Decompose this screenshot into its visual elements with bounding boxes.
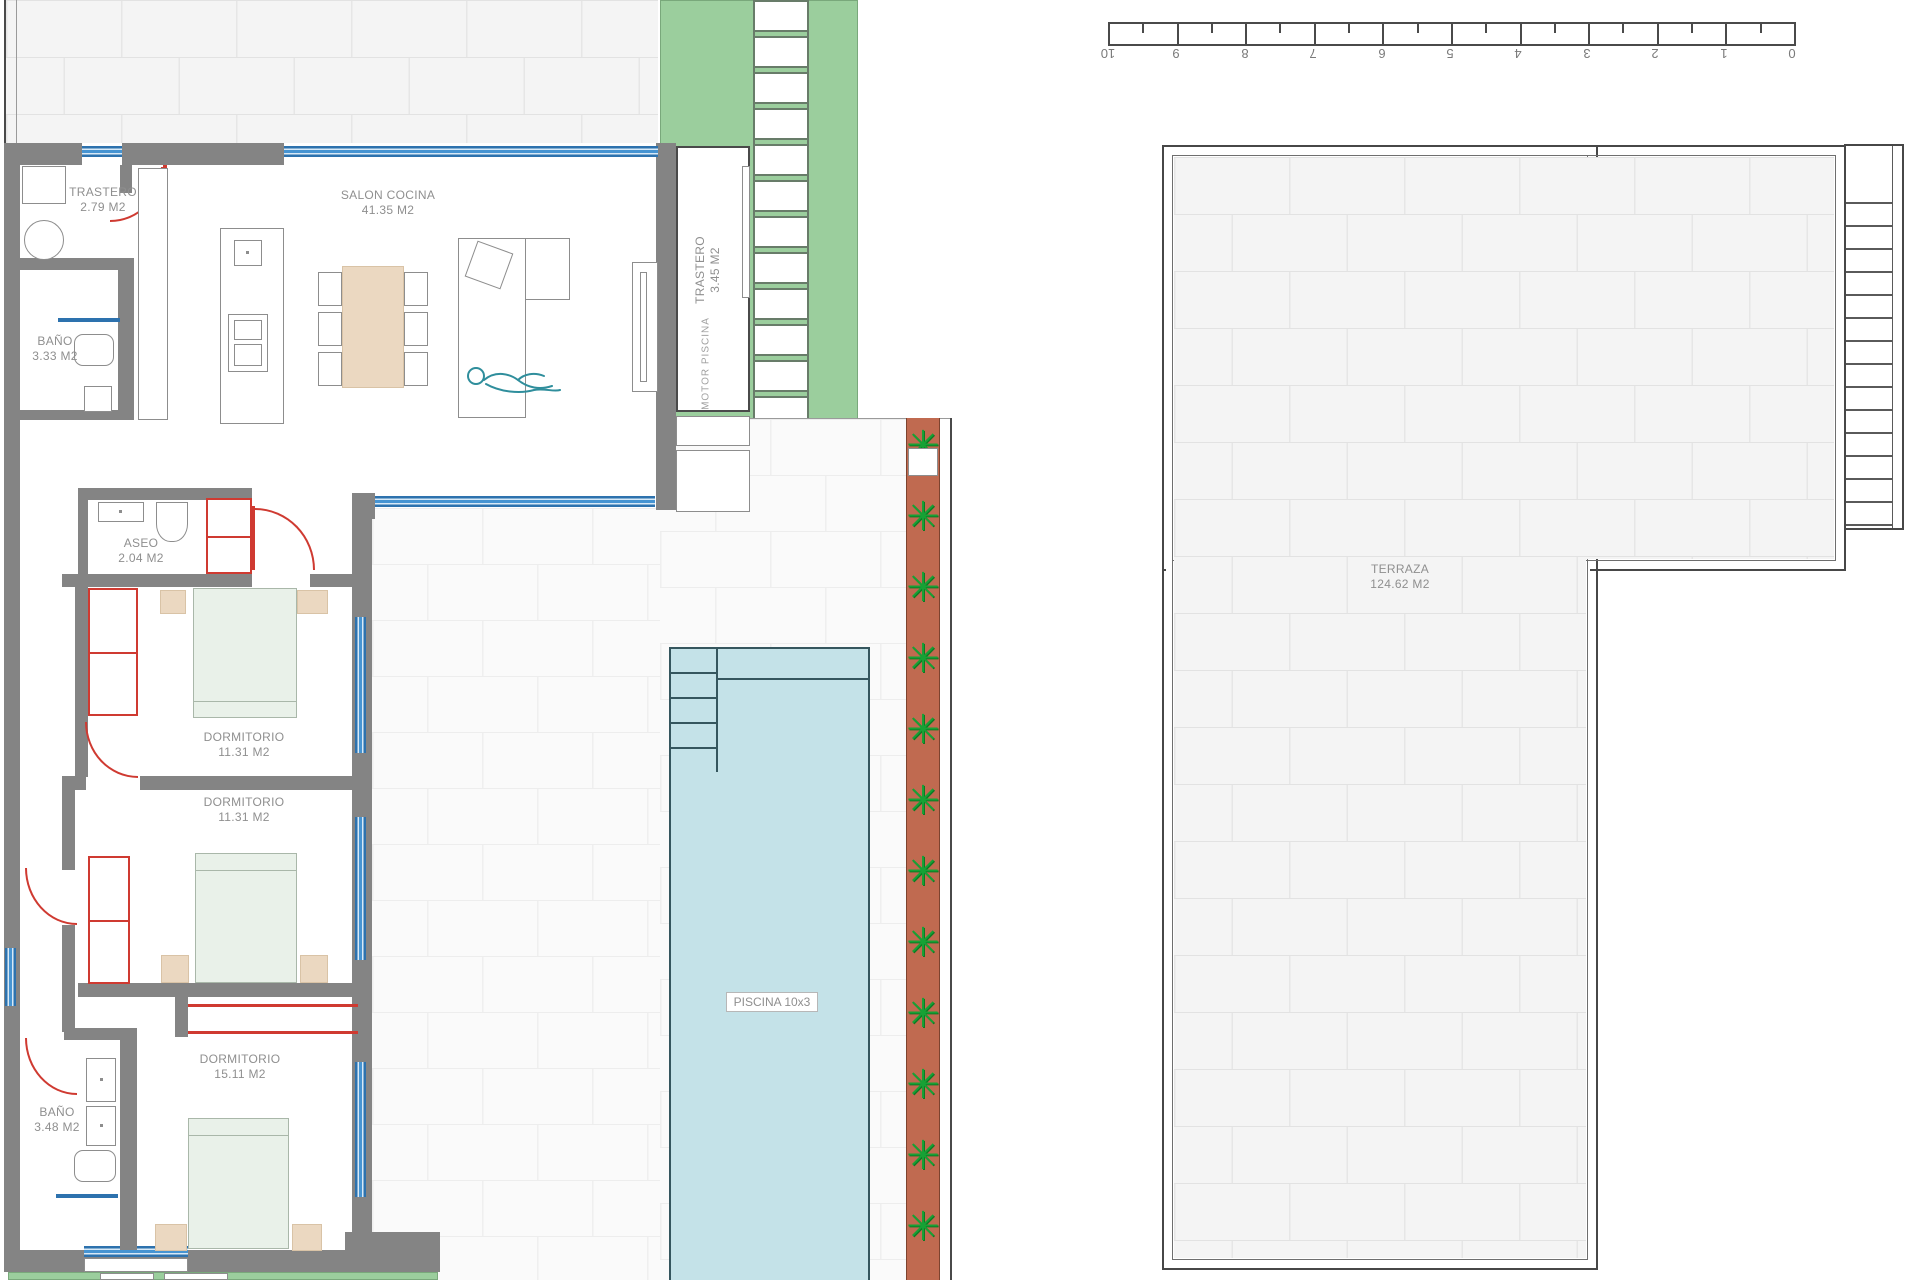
- dining-chair: [404, 352, 428, 386]
- ruler-segment: [1384, 24, 1453, 44]
- plant-icon: ✳: [906, 710, 940, 750]
- terraza-paving-lower: [1174, 157, 1586, 1258]
- wardrobe-divider: [90, 652, 136, 654]
- ruler-segment: [1727, 24, 1794, 44]
- kitchen-cooktop-inner-1: [234, 320, 262, 340]
- nightstand: [300, 955, 328, 983]
- slider-track-dorm2: [188, 1004, 358, 1007]
- bed-dorm3: [188, 1118, 289, 1249]
- ruler-minor-tick: [1417, 24, 1419, 33]
- wall-trastero1-bottom: [20, 258, 134, 270]
- ruler-segment: [1316, 24, 1385, 44]
- annex-box-small: [676, 416, 750, 446]
- window-bedroom-3: [355, 1062, 366, 1197]
- bed-fold: [194, 701, 296, 702]
- wall-left: [4, 143, 20, 1250]
- ruler-number: 6: [1378, 46, 1385, 61]
- door-arc-dorm2: [25, 868, 77, 925]
- room-label-salon: SALON COCINA 41.35 M2: [308, 188, 468, 218]
- wall-bano1-bottom: [20, 410, 134, 420]
- dining-chair: [404, 272, 428, 306]
- ruler-segment: [1179, 24, 1248, 44]
- room-label-bano2: BAÑO 3.48 M2: [0, 1105, 137, 1135]
- bed-dorm1: [193, 588, 297, 718]
- wall-dorm1-top-b: [310, 574, 360, 587]
- window-bedroom-2: [355, 817, 366, 960]
- ruler-minor-tick: [1348, 24, 1350, 33]
- plant-icon: ✳: [906, 639, 940, 679]
- ruler-number: 0: [1788, 46, 1795, 61]
- wall-dorm2-bottom: [78, 983, 360, 997]
- bano1-shower-screen: [58, 318, 120, 322]
- scale-ruler-numbers: 109876543210: [1108, 46, 1792, 62]
- aseo-sink-tap: [119, 510, 122, 513]
- pool-shelf-line: [718, 678, 868, 680]
- nightstand: [292, 1224, 322, 1251]
- door-arc-aseo: [255, 508, 315, 570]
- wardrobe-dorm2: [88, 856, 130, 984]
- nightstand: [160, 590, 186, 614]
- plant-strip: ✳✳✳✳✳✳✳✳✳✳✳✳: [906, 418, 940, 1280]
- wall-hall-dorm1: [75, 587, 88, 777]
- plant-icon: ✳: [906, 1136, 940, 1176]
- bano2-toilet: [74, 1150, 116, 1182]
- plant-icon: ✳: [906, 497, 940, 537]
- window-salon-top: [284, 146, 658, 157]
- dining-chair: [318, 352, 342, 386]
- ruler-number: 8: [1241, 46, 1248, 61]
- wall-right-upper: [656, 143, 676, 510]
- wall-hall-dorm2-b: [62, 925, 75, 1032]
- plant-icon: ✳: [906, 1207, 940, 1247]
- floor-plan-canvas: ✳✳✳✳✳✳✳✳✳✳✳✳ PISCINA 10x3: [0, 0, 1920, 1280]
- dining-table: [342, 266, 404, 388]
- wall-dorm1-top-a: [62, 574, 252, 587]
- window-left-wall: [5, 948, 16, 1006]
- trastero1-boiler: [24, 220, 64, 260]
- driveway-paving: [6, 0, 658, 143]
- door-arc-dorm1: [85, 722, 138, 778]
- ruler-number: 10: [1101, 46, 1115, 61]
- wall-hall-dorm2-a: [62, 790, 75, 870]
- bano1-sink: [84, 386, 112, 412]
- ruler-segment: [1590, 24, 1659, 44]
- plant-icon: ✳: [906, 852, 940, 892]
- window-top-small: [82, 146, 122, 157]
- ruler-segment: [1110, 24, 1179, 44]
- window-salon-bottom: [375, 496, 655, 507]
- ruler-number: 3: [1583, 46, 1590, 61]
- wall-bottom-step: [345, 1232, 440, 1272]
- ruler-minor-tick: [1760, 24, 1762, 33]
- ruler-segment: [1659, 24, 1728, 44]
- wall-bano2-right: [120, 1028, 137, 1250]
- ruler-segment: [1453, 24, 1522, 44]
- plant-icon: ✳: [906, 994, 940, 1034]
- person-icon: [460, 350, 564, 412]
- kitchen-sink-tap: [246, 251, 249, 254]
- ruler-minor-tick: [1622, 24, 1624, 33]
- kitchen-cooktop-inner-2: [234, 344, 262, 366]
- bed-fold: [196, 870, 296, 871]
- ruler-minor-tick: [1142, 24, 1144, 33]
- bed-fold: [189, 1135, 288, 1136]
- ruler-minor-tick: [1691, 24, 1693, 33]
- ruler-minor-tick: [1554, 24, 1556, 33]
- wall-dorm2-stub: [175, 995, 188, 1037]
- wall-dorm1-bottom-a: [62, 776, 86, 790]
- stair-treads: [1846, 204, 1892, 526]
- nightstand: [161, 955, 189, 983]
- plant-icon: ✳: [906, 923, 940, 963]
- nightstand: [297, 590, 328, 614]
- window-seat-bottom-left: [84, 1258, 188, 1272]
- pool-terrace-paving-left: [372, 508, 660, 1280]
- wardrobe-divider: [90, 920, 128, 922]
- pool-label: PISCINA 10x3: [726, 992, 818, 1012]
- terrace-stairs: [1844, 144, 1904, 530]
- window-bedroom-1: [355, 617, 366, 753]
- annex-box-large: [676, 450, 750, 512]
- ruler-number: 9: [1173, 46, 1180, 61]
- bano2-shower-screen: [56, 1194, 118, 1198]
- ruler-segment: [1522, 24, 1591, 44]
- plant-icon: ✳: [906, 781, 940, 821]
- bottom-garden-box: [164, 1273, 228, 1280]
- wall-bottom: [4, 1250, 372, 1272]
- bottom-garden-box: [100, 1273, 154, 1280]
- slider-track-dorm3: [188, 1031, 358, 1034]
- ruler-minor-tick: [1211, 24, 1213, 33]
- ruler-number: 2: [1652, 46, 1659, 61]
- wall-dorm1-bottom-b: [140, 776, 360, 790]
- bed-dorm2: [195, 853, 297, 983]
- tv-screen: [640, 272, 647, 382]
- plant-icon: ✳: [906, 1065, 940, 1105]
- plot-boundary-left-inner: [16, 0, 17, 143]
- room-label-terraza: TERRAZA 124.62 M2: [1320, 562, 1480, 592]
- ruler-minor-tick: [1279, 24, 1281, 33]
- wardrobe-dorm1: [88, 588, 138, 716]
- room-label-dorm1: DORMITORIO 11.31 M2: [164, 730, 324, 760]
- planter-access-box: [908, 448, 938, 476]
- room-label-dorm3: DORMITORIO 15.11 M2: [160, 1052, 320, 1082]
- plot-boundary-right: [950, 418, 952, 1280]
- annex-door-line: [742, 166, 750, 298]
- ruler-number: 5: [1446, 46, 1453, 61]
- dining-chair: [318, 312, 342, 346]
- dining-chair: [404, 312, 428, 346]
- scale-ruler-bar: [1108, 22, 1796, 46]
- ruler-minor-tick: [1485, 24, 1487, 33]
- ruler-number: 7: [1310, 46, 1317, 61]
- room-label-trastero1: TRASTERO 2.79 M2: [23, 185, 183, 215]
- nightstand: [155, 1224, 187, 1251]
- room-label-dorm2: DORMITORIO 11.31 M2: [164, 795, 324, 825]
- door-arc-bano2: [25, 1038, 77, 1095]
- pool-steps: [671, 649, 718, 772]
- wall-top-b: [122, 143, 284, 165]
- room-label-bano1: BAÑO 3.33 M2: [0, 334, 135, 364]
- ruler-number: 4: [1515, 46, 1522, 61]
- stair-side-line: [1892, 146, 1893, 528]
- ruler-number: 1: [1720, 46, 1727, 61]
- bano2-cabinet-dot: [100, 1078, 103, 1081]
- plant-icon: ✳: [906, 568, 940, 608]
- dining-chair: [318, 272, 342, 306]
- room-label-aseo: ASEO 2.04 M2: [61, 536, 221, 566]
- ruler-segment: [1247, 24, 1316, 44]
